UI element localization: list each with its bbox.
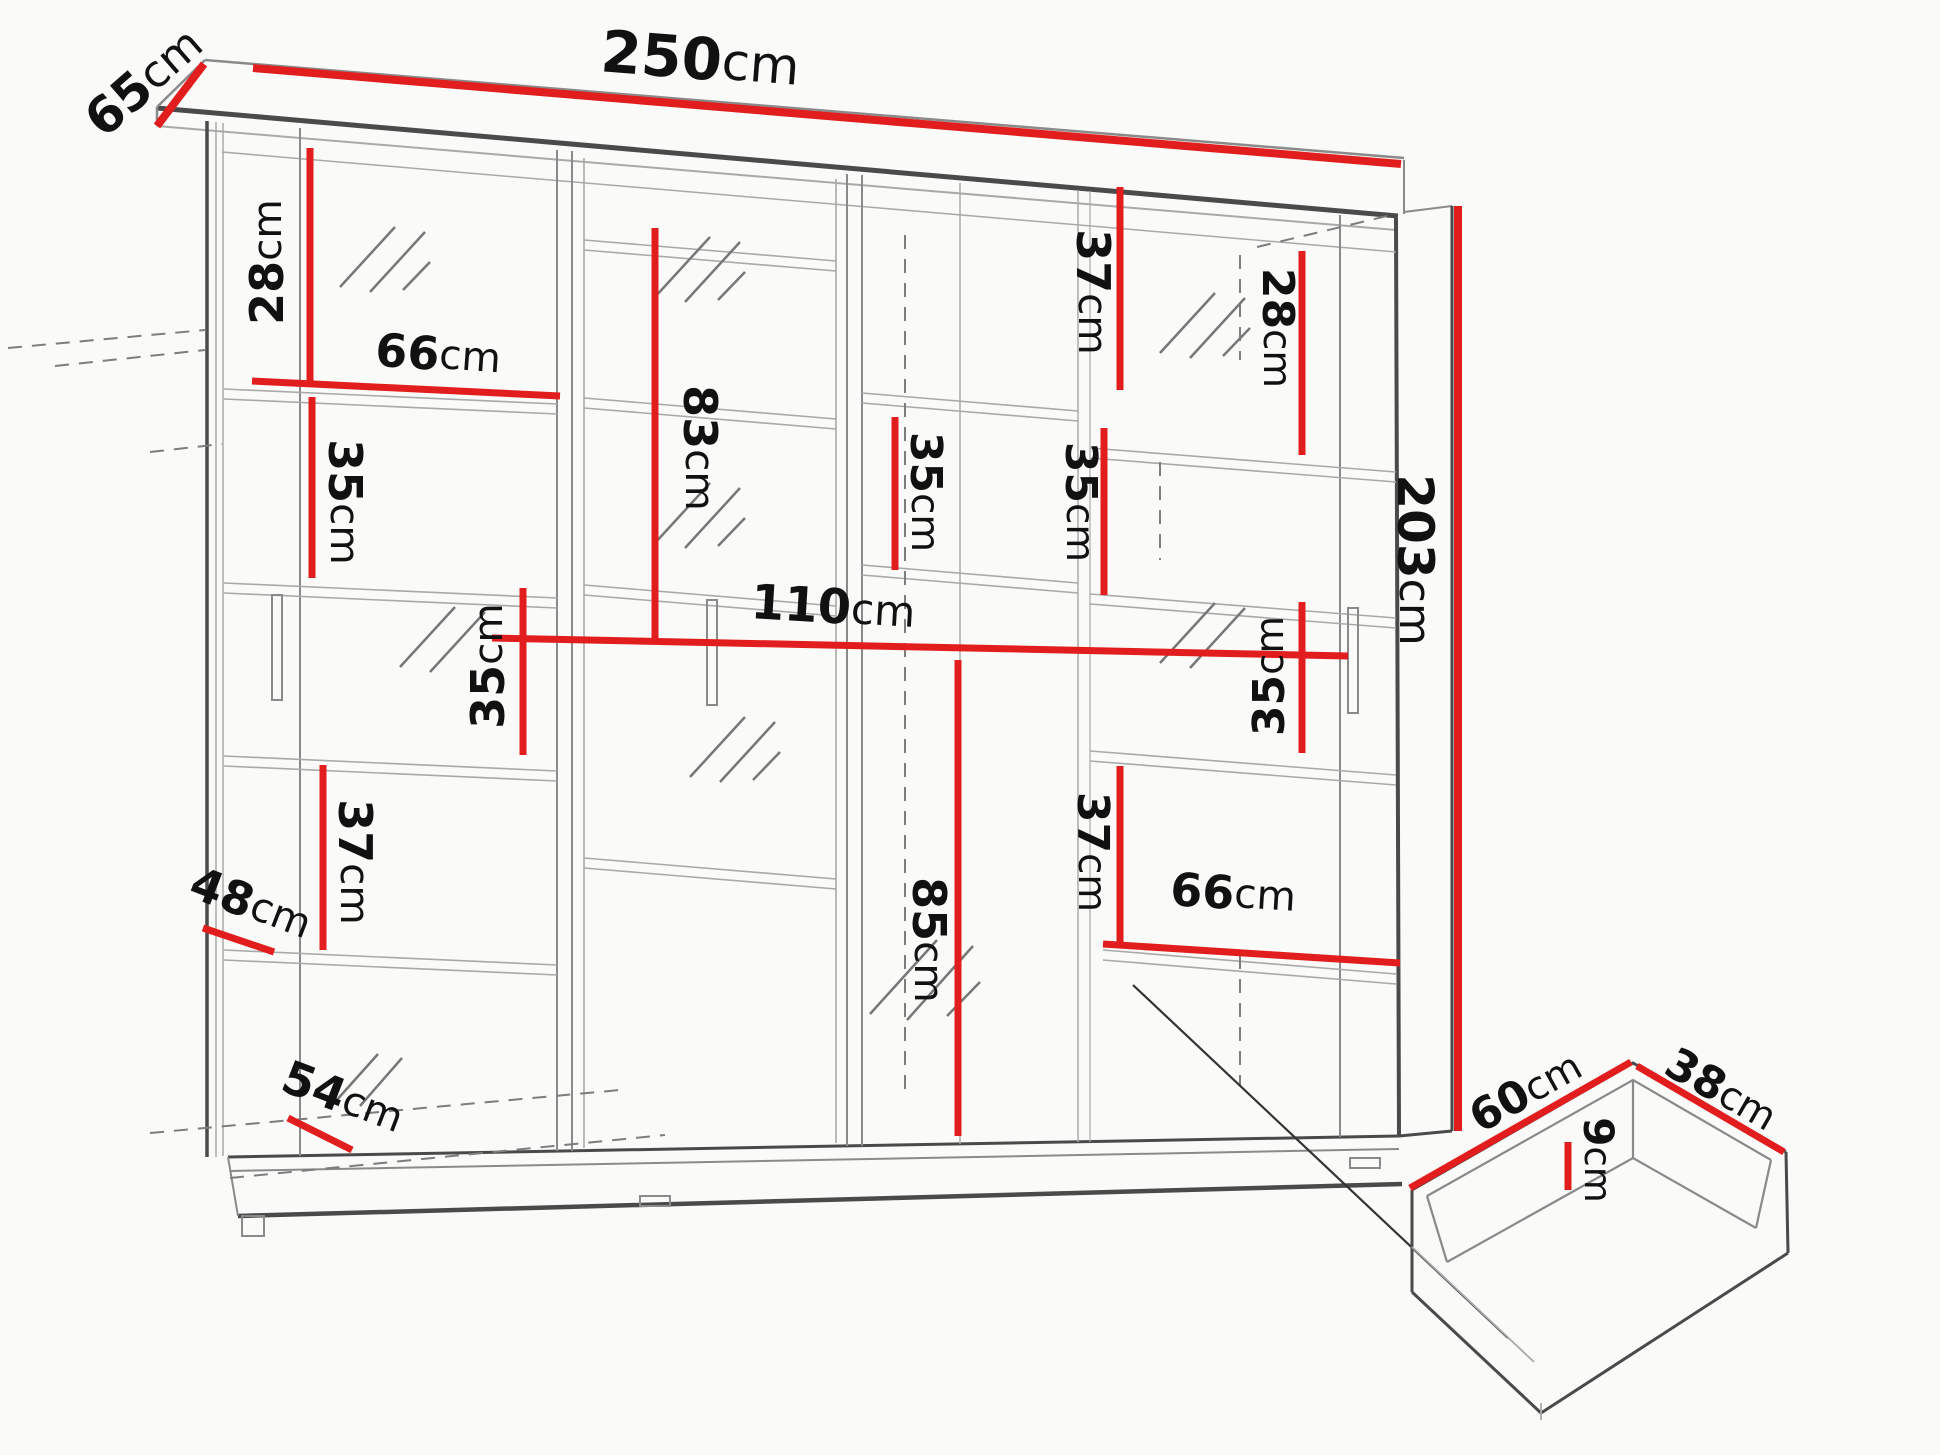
wardrobe-dimension-diagram: 250cm 65cm 203cm 28cm 66cm 35cm 35cm 83c… — [0, 0, 1940, 1455]
dim-label-width-250: 250cm — [599, 17, 803, 100]
dim-label-height-203: 203cm — [1387, 474, 1445, 645]
dim-label-drawer-9: 9cm — [1575, 1117, 1624, 1203]
dim-label-left-28: 28cm — [240, 199, 294, 325]
dim-label-plinth-54: 54cm — [275, 1049, 412, 1144]
dim-label-mid-35: 35cm — [900, 432, 951, 552]
dim-line-left-66 — [252, 381, 560, 396]
dim-line-width-250 — [253, 68, 1401, 164]
dim-label-left-35a: 35cm — [319, 439, 373, 565]
dim-line-center-110 — [492, 638, 1348, 656]
dim-label-right-66: 66cm — [1169, 862, 1298, 924]
dim-label-right-37-top: 37cm — [1067, 229, 1121, 355]
dim-label-left-66: 66cm — [374, 322, 503, 385]
dim-label-left-37: 37cm — [329, 799, 383, 925]
dim-line-plinth-54 — [288, 1118, 352, 1150]
dim-label-center-110: 110cm — [749, 574, 917, 640]
dim-label-right-28: 28cm — [1252, 268, 1303, 388]
dim-label-right-35b: 35cm — [1244, 616, 1295, 736]
dim-label-right-35a: 35cm — [1055, 442, 1106, 562]
dimension-lines — [157, 64, 1784, 1190]
dim-label-drawer-60: 60cm — [1461, 1040, 1591, 1143]
dim-label-center-83: 83cm — [674, 385, 728, 511]
dim-label-right-37-bottom: 37cm — [1067, 792, 1118, 912]
dimension-labels: 250cm 65cm 203cm 28cm 66cm 35cm 35cm 83c… — [73, 15, 1786, 1203]
hidden-edges — [8, 216, 1387, 1178]
dim-label-left-35b: 35cm — [461, 603, 515, 729]
dim-label-drawer-38: 38cm — [1656, 1038, 1786, 1142]
dim-label-center-85: 85cm — [903, 877, 957, 1003]
wardrobe-drawing — [8, 60, 1452, 1236]
diagram-canvas: 250cm 65cm 203cm 28cm 66cm 35cm 35cm 83c… — [0, 0, 1940, 1455]
